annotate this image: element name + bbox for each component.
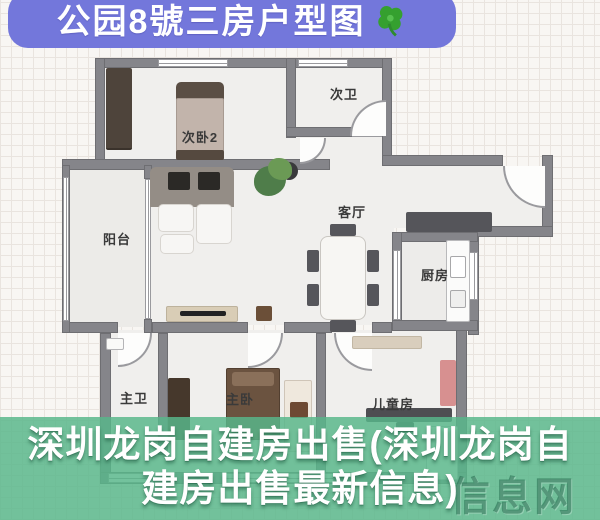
kids-bed: [440, 360, 456, 406]
window: [158, 59, 228, 67]
bed-pillow: [232, 372, 274, 386]
plant-leaves: [268, 158, 292, 180]
wall: [286, 58, 296, 138]
caption-text: 深圳龙岗自建房出售(深圳龙岗自 建房出售最新信息): [0, 423, 600, 511]
wardrobe: [352, 336, 422, 349]
chair: [307, 250, 319, 272]
chair: [307, 284, 319, 306]
wall: [62, 322, 118, 333]
caption-line2: 建房出售最新信息): [0, 467, 600, 511]
plant: [254, 158, 300, 200]
kitchen-stove: [450, 290, 466, 308]
room-label-bath1: 主卫: [110, 388, 158, 407]
screenshot-root: 次卧2 次卫 客厅 阳台 厨房 主卫 主卧 儿童房 公园8號三房户型图 信息网 …: [0, 0, 600, 520]
wall: [95, 58, 105, 170]
sofa-cushion: [160, 234, 194, 254]
window: [469, 252, 478, 300]
wall: [152, 322, 248, 333]
sofa-pillow: [198, 172, 220, 190]
wall: [286, 127, 354, 137]
sliding-door: [393, 250, 401, 320]
room-label-living: 客厅: [328, 202, 376, 221]
room-label-bedroom2: 次卧2: [170, 127, 230, 146]
room-label-bath2: 次卫: [320, 84, 368, 103]
tv-screen: [180, 311, 226, 316]
floor-top-block: [100, 62, 388, 165]
wall: [382, 155, 503, 166]
chair: [290, 402, 308, 418]
caption-line1: 深圳龙岗自建房出售(深圳龙岗自: [0, 423, 600, 467]
sofa-pillow: [168, 172, 190, 190]
wall: [284, 322, 332, 333]
sofa-cushion: [196, 204, 232, 244]
wardrobe: [106, 68, 132, 150]
chair: [367, 250, 379, 272]
dining-table: [320, 236, 366, 320]
bed-footboard: [176, 150, 224, 160]
bath-sink: [106, 338, 124, 350]
room-label-balcony: 阳台: [94, 229, 140, 248]
title-banner: 公园8號三房户型图: [8, 0, 456, 48]
stool: [256, 306, 272, 321]
room-label-kitchen: 厨房: [410, 265, 460, 284]
balcony-window: [63, 177, 69, 321]
chair: [330, 224, 356, 236]
wall: [372, 322, 392, 333]
wall: [144, 319, 152, 333]
clover-icon: [371, 0, 410, 39]
banner-title: 公园8號三房户型图: [57, 0, 366, 50]
room-label-bedroom1: 主卧: [216, 389, 264, 408]
sofa-back: [150, 167, 234, 207]
tv-cabinet: [406, 212, 492, 232]
chair: [367, 284, 379, 306]
chair: [330, 320, 356, 332]
window: [298, 59, 348, 67]
room-label-kids: 儿童房: [363, 394, 423, 413]
sofa-cushion: [158, 204, 194, 232]
